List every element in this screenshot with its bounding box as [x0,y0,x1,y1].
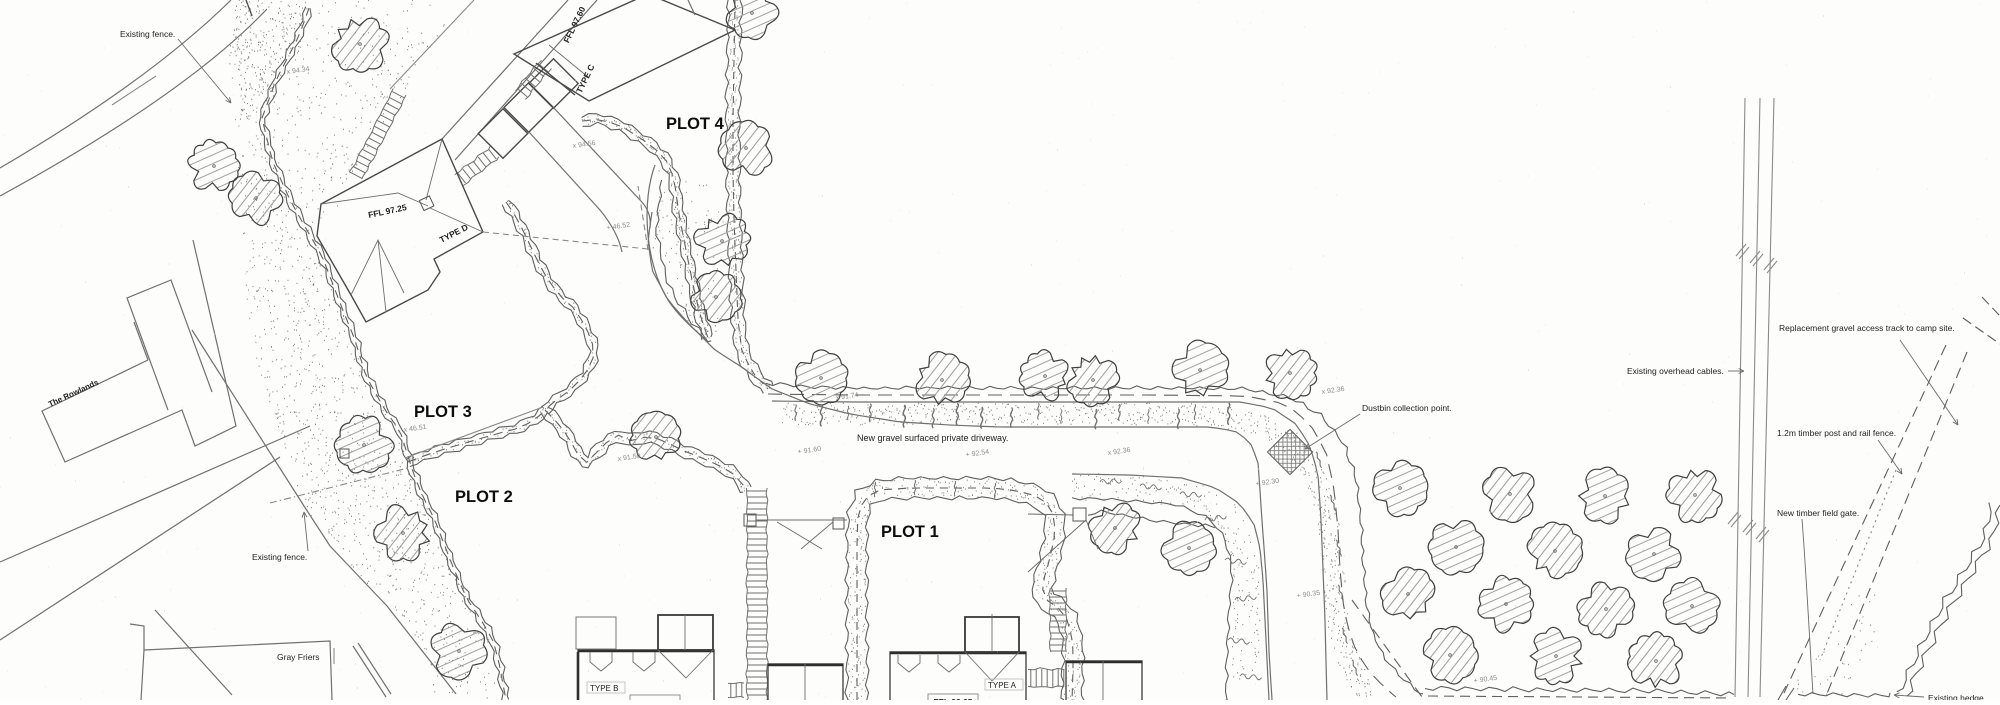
svg-text:PLOT 3: PLOT 3 [414,403,472,421]
svg-text:1.2m timber post and rail fenc: 1.2m timber post and rail fence. [1777,428,1896,438]
svg-text:Existing hedge: Existing hedge [1928,693,1984,700]
svg-text:Dustbin collection point.: Dustbin collection point. [1362,403,1452,413]
svg-text:Existing fence.: Existing fence. [120,29,175,39]
svg-text:TYPE B: TYPE B [590,684,618,693]
svg-text:Replacement gravel access trac: Replacement gravel access track to camp … [1779,323,1955,333]
svg-text:PLOT 1: PLOT 1 [881,523,939,541]
svg-text:PLOT 2: PLOT 2 [455,488,513,506]
svg-text:New gravel surfaced private dr: New gravel surfaced private driveway. [857,433,1008,443]
svg-text:New timber field gate.: New timber field gate. [1777,508,1859,518]
svg-text:PLOT 4: PLOT 4 [666,115,725,133]
svg-text:Gray Friers: Gray Friers [277,652,320,662]
svg-text:Existing overhead cables.: Existing overhead cables. [1627,366,1724,376]
svg-text:TYPE A: TYPE A [988,681,1017,690]
